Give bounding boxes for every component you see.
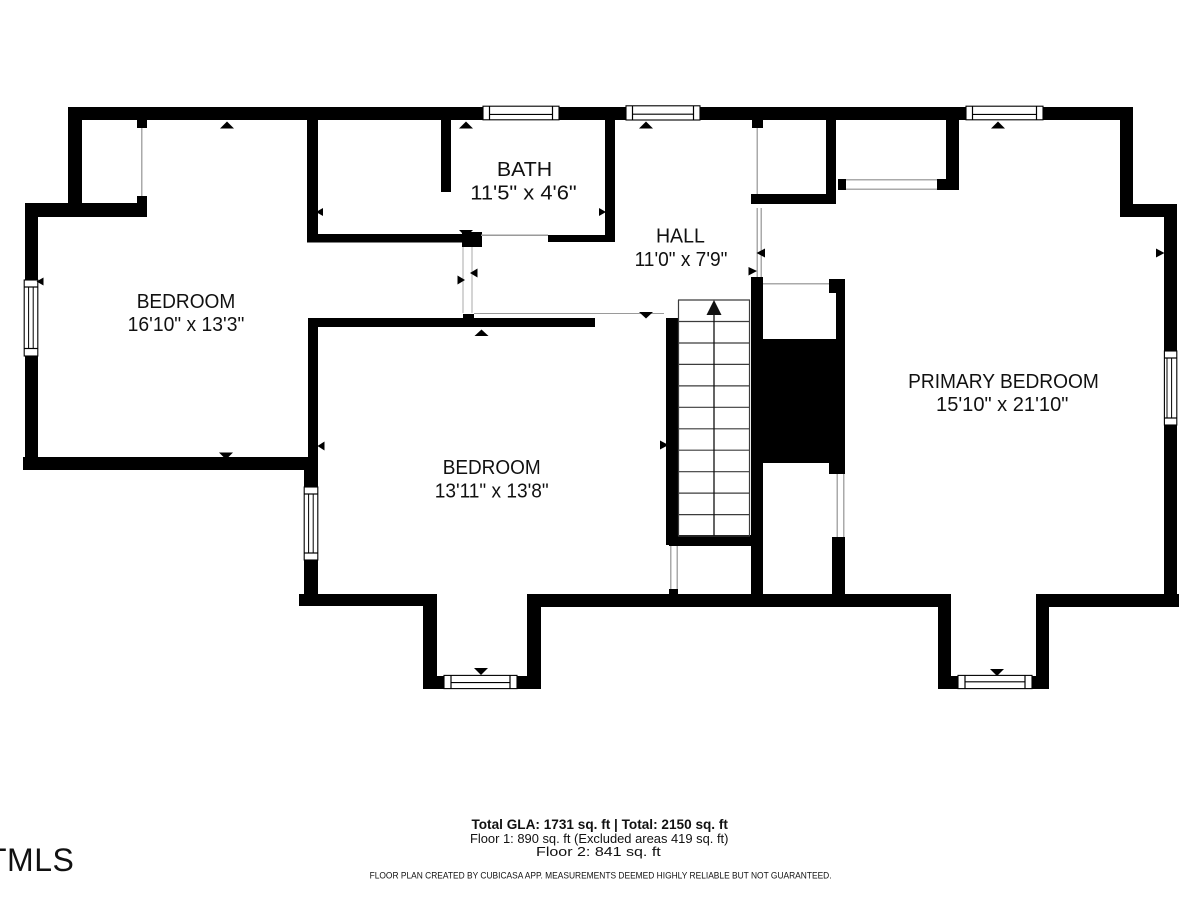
svg-text:TMLS: TMLS — [0, 842, 74, 878]
svg-text:BEDROOM: BEDROOM — [443, 457, 541, 479]
svg-text:15'10" x 21'10": 15'10" x 21'10" — [936, 394, 1068, 416]
svg-text:11'0" x 7'9": 11'0" x 7'9" — [635, 249, 728, 271]
svg-text:13'11" x 13'8": 13'11" x 13'8" — [435, 481, 549, 503]
svg-text:BATH: BATH — [497, 159, 552, 181]
svg-text:Total GLA: 1731 sq. ft | Total: Total GLA: 1731 sq. ft | Total: 2150 sq.… — [471, 817, 728, 832]
svg-text:FLOOR PLAN CREATED BY CUBICASA: FLOOR PLAN CREATED BY CUBICASA APP. MEAS… — [370, 871, 832, 881]
svg-text:HALL: HALL — [656, 226, 705, 248]
svg-text:PRIMARY BEDROOM: PRIMARY BEDROOM — [908, 371, 1099, 393]
svg-text:11'5" x 4'6": 11'5" x 4'6" — [470, 183, 576, 205]
svg-text:16'10" x 13'3": 16'10" x 13'3" — [128, 314, 245, 336]
svg-text:Floor 2: 841 sq. ft: Floor 2: 841 sq. ft — [536, 844, 661, 859]
svg-text:BEDROOM: BEDROOM — [137, 291, 236, 313]
